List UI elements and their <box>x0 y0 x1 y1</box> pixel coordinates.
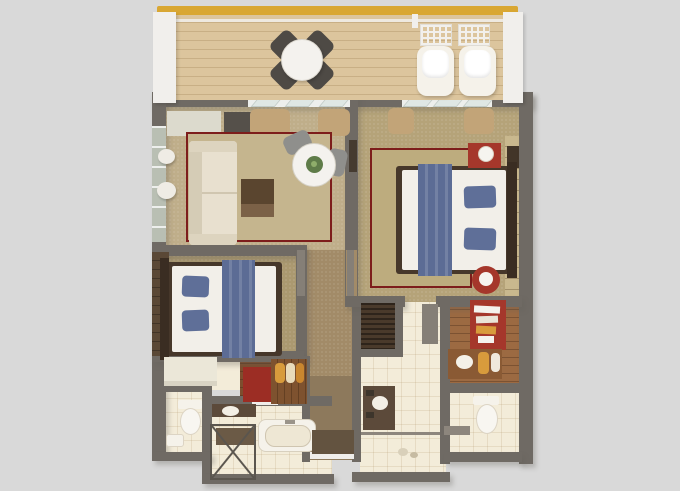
bed-runner <box>418 164 452 276</box>
vanity-sink <box>222 406 239 416</box>
wardrobe-frame <box>352 349 403 357</box>
vanity-sink <box>372 396 388 410</box>
headboard <box>160 258 169 360</box>
bathtub-basin <box>265 425 311 447</box>
shelf-item <box>476 325 496 334</box>
sink <box>166 434 184 447</box>
entry-mat <box>312 430 354 454</box>
balcony-railing <box>157 6 518 15</box>
lounger-headrest <box>420 24 452 46</box>
wall-living-left-bedroom <box>152 245 304 256</box>
lounger-cushion <box>422 50 449 78</box>
sofa-back <box>189 141 202 245</box>
curtain <box>464 108 494 134</box>
bathtub <box>258 419 316 452</box>
side-table-top <box>479 272 493 286</box>
balcony-wall-right <box>503 12 523 103</box>
shelf-item <box>476 316 498 324</box>
table-plant-highlight <box>311 161 317 167</box>
wall-tv <box>349 140 357 172</box>
bed-runner <box>222 260 255 358</box>
sun-lounger <box>417 46 454 96</box>
pillow <box>464 185 497 208</box>
rack-towel <box>275 363 285 383</box>
door-leaf-living <box>297 250 305 296</box>
curtain <box>388 108 414 134</box>
shower-drain-item <box>398 448 408 456</box>
towel <box>478 352 489 374</box>
balcony-deck <box>166 14 508 100</box>
sun-lounger <box>459 46 496 96</box>
sofa-armrest <box>189 234 237 245</box>
shower-enclosure <box>210 424 256 480</box>
door-leaf-hall <box>347 250 354 296</box>
wall-right <box>519 92 533 464</box>
dressing-sink <box>456 355 473 369</box>
towel <box>491 353 500 372</box>
coffee-table <box>241 179 274 217</box>
pillow <box>182 276 210 298</box>
wall-ledge <box>444 426 470 435</box>
ottoman <box>157 182 176 199</box>
rack-towel <box>286 363 295 383</box>
desk <box>164 357 217 386</box>
shelf-item <box>478 336 494 343</box>
floor-plan-render <box>0 0 680 491</box>
wardrobe-louvered <box>361 303 395 349</box>
toilet-bowl <box>180 408 201 435</box>
toilet-bowl <box>476 404 498 434</box>
amenity-tray <box>366 412 374 418</box>
patio-table <box>281 39 323 81</box>
amenity-tray <box>366 390 374 396</box>
wall-bathroom-right-bottom <box>352 472 450 482</box>
sofa-armrest <box>189 141 237 152</box>
wall-dressing-toilet-divider <box>444 383 522 393</box>
shelf-item <box>474 305 500 313</box>
balcony-wall-left <box>153 12 176 103</box>
rack-towel <box>296 363 304 383</box>
pillow <box>182 310 210 332</box>
balcony-post <box>412 14 418 28</box>
sofa <box>189 141 237 245</box>
wall-toilet-right-bottom <box>444 452 522 462</box>
sofa-cushion-seam <box>202 192 237 194</box>
lounger-cushion <box>464 50 491 78</box>
balcony-ledge <box>166 19 508 22</box>
ottoman <box>158 149 175 164</box>
bathtub-faucet <box>285 420 295 424</box>
pillow <box>464 227 497 250</box>
shower-drain-item <box>410 452 418 458</box>
desk-edge <box>164 381 217 386</box>
lounger-headrest <box>458 24 490 46</box>
wall-bathroom-right-right <box>440 296 450 464</box>
door-leaf-bedroom-right <box>422 304 438 344</box>
coffee-table-shelf <box>241 204 274 217</box>
table-lamp <box>478 146 494 162</box>
headboard <box>507 162 517 278</box>
shower-glass-line <box>361 432 440 435</box>
